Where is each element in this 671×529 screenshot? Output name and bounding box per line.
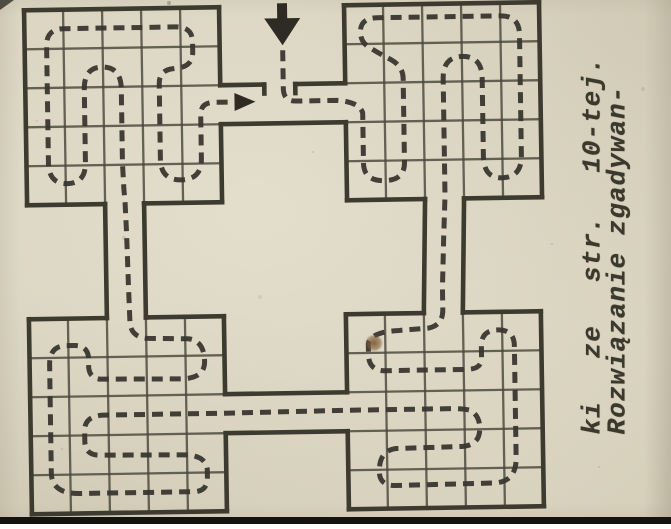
block-wall <box>224 316 225 394</box>
grid-line <box>26 124 221 127</box>
grid-line <box>31 472 226 475</box>
grid-line <box>345 41 540 44</box>
grid-line <box>500 3 503 198</box>
entry-down-arrow-icon <box>277 3 287 19</box>
corridor-wall <box>221 122 346 124</box>
grid-line <box>31 433 226 436</box>
block-wall <box>349 506 544 509</box>
block-wall <box>344 2 539 5</box>
grid-line <box>146 317 149 512</box>
stain-spot <box>365 335 383 351</box>
corridor-wall <box>144 203 146 317</box>
corridor-wall <box>295 83 345 84</box>
corridor-wall <box>105 204 107 318</box>
block-wall <box>144 202 222 203</box>
block-wall <box>146 316 224 317</box>
block-wall <box>24 10 27 205</box>
corridor-wall <box>225 392 347 394</box>
caption-word-ze: ze <box>582 325 604 358</box>
grid-line <box>63 10 66 205</box>
block-wall <box>346 314 347 392</box>
block-wall <box>464 197 542 198</box>
block-wall <box>348 431 349 509</box>
corridor-wall <box>422 199 427 313</box>
maze-diagram <box>0 0 671 529</box>
block-wall <box>347 199 425 200</box>
corridor-wall <box>226 431 348 433</box>
caption-line-2: ki ze str. 10-tej. <box>582 57 604 435</box>
grid-line <box>383 5 386 200</box>
block-wall <box>27 204 105 205</box>
block-wall <box>32 511 227 514</box>
caption-line-1: Rozwiązanie zgadywan- <box>607 57 629 435</box>
caption-text-1: Rozwiązanie zgadywan- <box>603 86 633 435</box>
block-wall <box>346 313 424 314</box>
grid-line <box>502 312 505 507</box>
caption: Rozwiązanie zgadywan- ki ze str. 10-tej. <box>582 57 629 435</box>
grid-line <box>346 158 541 161</box>
grid-line <box>180 8 183 203</box>
grid-line <box>107 318 110 513</box>
block-wall <box>463 311 541 312</box>
block-wall <box>539 2 542 197</box>
caption-word-str: str. <box>582 216 604 282</box>
block-wall <box>346 122 347 200</box>
grid-line <box>422 4 425 199</box>
grid-line <box>30 394 225 397</box>
entry-down-arrowhead-icon <box>264 18 300 46</box>
grid-line <box>102 9 105 204</box>
corridor-wall <box>461 198 466 312</box>
block-wall <box>219 7 220 85</box>
scanned-page: Rozwiązanie zgadywan- ki ze str. 10-tej. <box>0 0 671 524</box>
grid-line <box>25 85 220 88</box>
grid-line <box>30 355 225 358</box>
corridor-wall <box>220 85 264 86</box>
grid-line <box>347 389 542 392</box>
block-wall <box>29 318 107 319</box>
block-wall <box>221 124 222 202</box>
caption-word-page: 10-tej. <box>582 57 604 173</box>
block-wall <box>29 319 32 514</box>
page-bottom-edge <box>0 517 671 524</box>
block-wall <box>24 7 219 10</box>
block-wall <box>226 433 227 511</box>
maze-tilt-wrapper <box>0 0 671 529</box>
block-wall <box>541 311 544 506</box>
caption-word-ki: ki <box>582 401 604 434</box>
grid-line <box>461 3 464 198</box>
block-wall <box>344 5 345 83</box>
finish-right-arrow-icon <box>234 93 255 111</box>
grid-line <box>141 8 144 203</box>
